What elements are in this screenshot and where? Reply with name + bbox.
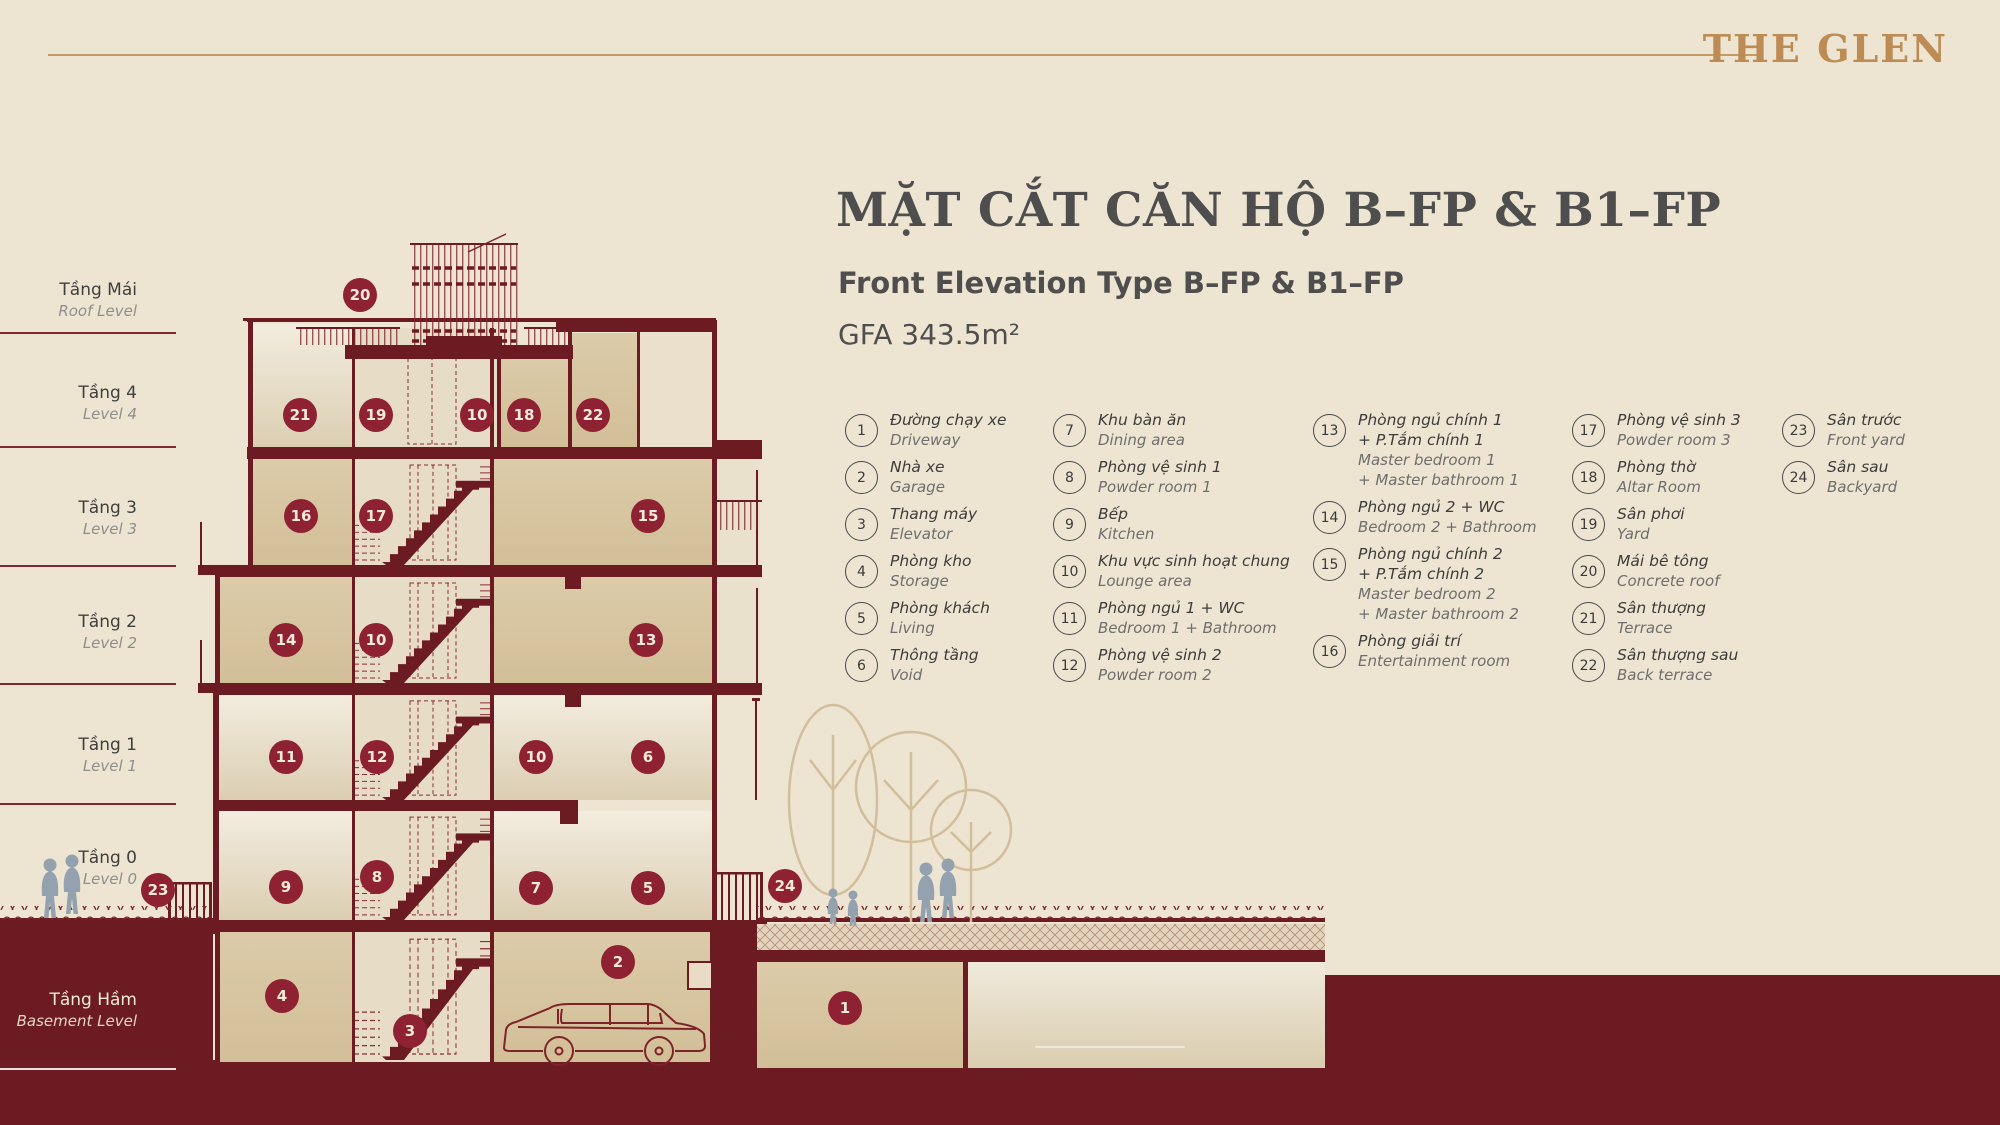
legend-number-circle: 11	[1053, 602, 1086, 635]
legend-text: Sân thượng sauBack terrace	[1617, 645, 1738, 685]
legend-label-vn: Đường chạy xe	[890, 410, 1007, 430]
room-number-badge: 7	[519, 871, 553, 905]
floor-label-en: Level 2	[0, 633, 137, 654]
room-number-badge: 14	[269, 623, 303, 657]
legend-number-circle: 21	[1572, 602, 1605, 635]
legend-number-circle: 1	[845, 414, 878, 447]
legend-item: 24Sân sauBackyard	[1782, 457, 1905, 497]
legend-text: Đường chạy xeDriveway	[890, 410, 1007, 450]
room-number-badge: 5	[631, 871, 665, 905]
legend-label-en: Elevator	[890, 524, 977, 544]
legend-number-circle: 22	[1572, 649, 1605, 682]
floor-label-en: Roof Level	[0, 301, 137, 322]
floor-level-line	[0, 683, 176, 685]
floor-label: Tầng 4Level 4	[0, 382, 137, 425]
legend-label-vn: Phòng vệ sinh 3	[1617, 410, 1741, 430]
legend-number-circle: 19	[1572, 508, 1605, 541]
trees	[789, 705, 1011, 922]
legend-text: Thang máyElevator	[890, 504, 977, 544]
legend-label-vn: Phòng vệ sinh 1	[1098, 457, 1222, 477]
legend-label-vn: Bếp	[1098, 504, 1154, 524]
legend-column: 23Sân trướcFront yard24Sân sauBackyard	[1782, 410, 1905, 504]
legend-label-en: Powder room 3	[1617, 430, 1741, 450]
legend-number-circle: 6	[845, 649, 878, 682]
legend-item: 20Mái bê tôngConcrete roof	[1572, 551, 1741, 591]
legend-item: 2Nhà xeGarage	[845, 457, 1007, 497]
legend-item: 23Sân trướcFront yard	[1782, 410, 1905, 450]
room-number-badge: 3	[393, 1014, 427, 1048]
floor-label-en: Level 3	[0, 519, 137, 540]
legend-number-circle: 4	[845, 555, 878, 588]
legend-number-circle: 8	[1053, 461, 1086, 494]
legend-number-circle: 17	[1572, 414, 1605, 447]
legend-text: Khu bàn ănDining area	[1098, 410, 1186, 450]
room-number-badge: 2	[601, 945, 635, 979]
room-number-badge: 19	[359, 398, 393, 432]
legend-label-en: Void	[890, 665, 979, 685]
floor-label-vn: Tầng 0	[0, 847, 137, 869]
legend-column: 17Phòng vệ sinh 3Powder room 318Phòng th…	[1572, 410, 1741, 692]
room-number-badge: 15	[631, 499, 665, 533]
legend-label-en: Master bedroom 2 + Master bathroom 2	[1358, 584, 1519, 624]
legend-column: 13Phòng ngủ chính 1 + P.Tắm chính 1Maste…	[1313, 410, 1537, 678]
floor-label-vn: Tầng Hầm	[0, 989, 137, 1011]
legend-label-en: Front yard	[1827, 430, 1905, 450]
floor-label: Tầng MáiRoof Level	[0, 279, 137, 322]
room-number-badge: 12	[360, 740, 394, 774]
legend-text: Phòng khoStorage	[890, 551, 972, 591]
legend-text: Mái bê tôngConcrete roof	[1617, 551, 1719, 591]
floor-label-en: Basement Level	[0, 1011, 137, 1032]
legend-label-vn: Phòng ngủ chính 2 + P.Tắm chính 2	[1358, 544, 1519, 584]
elevation-poster: THE GLEN MẶT CẮT CĂN HỘ B–FP & B1–FP Fro…	[0, 0, 2000, 1125]
legend-item: 19Sân phơiYard	[1572, 504, 1741, 544]
legend-number-circle: 18	[1572, 461, 1605, 494]
legend-text: Sân phơiYard	[1617, 504, 1685, 544]
legend-label-vn: Phòng giải trí	[1358, 631, 1510, 651]
legend-text: Phòng kháchLiving	[890, 598, 990, 638]
legend-number-circle: 13	[1313, 414, 1346, 447]
legend-label-en: Bedroom 2 + Bathroom	[1358, 517, 1537, 537]
legend-item: 7Khu bàn ănDining area	[1053, 410, 1290, 450]
legend-label-en: Yard	[1617, 524, 1685, 544]
legend-item: 22Sân thượng sauBack terrace	[1572, 645, 1741, 685]
legend-number-circle: 20	[1572, 555, 1605, 588]
legend-label-en: Driveway	[890, 430, 1007, 450]
floor-label-vn: Tầng 1	[0, 734, 137, 756]
floor-label-vn: Tầng 3	[0, 497, 137, 519]
legend-text: Phòng giải tríEntertainment room	[1358, 631, 1510, 671]
legend-label-en: Concrete roof	[1617, 571, 1719, 591]
legend-label-en: Back terrace	[1617, 665, 1738, 685]
legend-label-vn: Nhà xe	[890, 457, 945, 477]
legend-label-vn: Sân thượng	[1617, 598, 1706, 618]
legend-text: Khu vực sinh hoạt chungLounge area	[1098, 551, 1290, 591]
legend-item: 18Phòng thờAltar Room	[1572, 457, 1741, 497]
roof-pergola	[410, 234, 518, 345]
legend-item: 10Khu vực sinh hoạt chungLounge area	[1053, 551, 1290, 591]
legend-item: 13Phòng ngủ chính 1 + P.Tắm chính 1Maste…	[1313, 410, 1537, 490]
legend-item: 4Phòng khoStorage	[845, 551, 1007, 591]
legend-number-circle: 23	[1782, 414, 1815, 447]
legend-label-vn: Mái bê tông	[1617, 551, 1719, 571]
legend-text: Phòng vệ sinh 1Powder room 1	[1098, 457, 1222, 497]
legend-item: 16Phòng giải tríEntertainment room	[1313, 631, 1537, 671]
legend-text: Phòng vệ sinh 3Powder room 3	[1617, 410, 1741, 450]
room-number-badge: 20	[343, 278, 377, 312]
legend-label-en: Living	[890, 618, 990, 638]
floor-level-line	[0, 332, 176, 334]
legend-label-vn: Sân trước	[1827, 410, 1905, 430]
room-number-badge: 16	[284, 499, 318, 533]
room-number-badge: 11	[269, 740, 303, 774]
legend-text: Phòng ngủ 2 + WCBedroom 2 + Bathroom	[1358, 497, 1537, 537]
floor-label: Tầng 0Level 0	[0, 847, 137, 890]
legend-label-vn: Phòng ngủ 1 + WC	[1098, 598, 1277, 618]
floor-label: Tầng 2Level 2	[0, 611, 137, 654]
legend-text: Phòng ngủ chính 1 + P.Tắm chính 1Master …	[1358, 410, 1519, 490]
legend-text: Sân trướcFront yard	[1827, 410, 1905, 450]
legend-number-circle: 14	[1313, 501, 1346, 534]
legend-item: 12Phòng vệ sinh 2Powder room 2	[1053, 645, 1290, 685]
legend-label-en: Powder room 2	[1098, 665, 1222, 685]
legend-text: Phòng vệ sinh 2Powder room 2	[1098, 645, 1222, 685]
legend-number-circle: 12	[1053, 649, 1086, 682]
legend-label-vn: Phòng kho	[890, 551, 972, 571]
legend-label-vn: Phòng thờ	[1617, 457, 1701, 477]
legend-item: 6Thông tầngVoid	[845, 645, 1007, 685]
legend-item: 8Phòng vệ sinh 1Powder room 1	[1053, 457, 1290, 497]
floor-label-en: Level 4	[0, 404, 137, 425]
room-number-badge: 21	[283, 398, 317, 432]
legend-label-vn: Thông tầng	[890, 645, 979, 665]
legend-label-en: Dining area	[1098, 430, 1186, 450]
legend-number-circle: 3	[845, 508, 878, 541]
floor-label-en: Level 0	[0, 869, 137, 890]
legend-label-vn: Sân phơi	[1617, 504, 1685, 524]
floor-level-line	[0, 803, 176, 805]
legend-label-vn: Phòng vệ sinh 2	[1098, 645, 1222, 665]
legend-item: 3Thang máyElevator	[845, 504, 1007, 544]
legend-text: Sân thượngTerrace	[1617, 598, 1706, 638]
legend-label-en: Lounge area	[1098, 571, 1290, 591]
legend-label-vn: Phòng khách	[890, 598, 990, 618]
legend-label-en: Entertainment room	[1358, 651, 1510, 671]
legend-text: Phòng thờAltar Room	[1617, 457, 1701, 497]
legend-text: Phòng ngủ chính 2 + P.Tắm chính 2Master …	[1358, 544, 1519, 624]
room-number-badge: 4	[265, 979, 299, 1013]
legend-number-circle: 5	[845, 602, 878, 635]
room-number-badge: 24	[768, 869, 802, 903]
legend-label-en: Terrace	[1617, 618, 1706, 638]
legend-item: 14Phòng ngủ 2 + WCBedroom 2 + Bathroom	[1313, 497, 1537, 537]
legend-label-en: Bedroom 1 + Bathroom	[1098, 618, 1277, 638]
room-number-badge: 18	[507, 398, 541, 432]
room-number-badge: 23	[141, 873, 175, 907]
room-number-badge: 8	[360, 860, 394, 894]
room-number-badge: 9	[269, 870, 303, 904]
floor-label-vn: Tầng Mái	[0, 279, 137, 301]
floor-level-line	[0, 565, 176, 567]
legend-number-circle: 10	[1053, 555, 1086, 588]
room-number-badge: 22	[576, 398, 610, 432]
legend-item: 15Phòng ngủ chính 2 + P.Tắm chính 2Maste…	[1313, 544, 1537, 624]
legend-item: 11Phòng ngủ 1 + WCBedroom 1 + Bathroom	[1053, 598, 1290, 638]
floor-label: Tầng HầmBasement Level	[0, 989, 137, 1032]
legend-item: 17Phòng vệ sinh 3Powder room 3	[1572, 410, 1741, 450]
floor-label-en: Level 1	[0, 756, 137, 777]
room-number-badge: 10	[519, 740, 553, 774]
legend-label-vn: Thang máy	[890, 504, 977, 524]
legend-label-en: Powder room 1	[1098, 477, 1222, 497]
floor-level-line	[0, 446, 176, 448]
legend-number-circle: 24	[1782, 461, 1815, 494]
legend-label-vn: Sân thượng sau	[1617, 645, 1738, 665]
legend-number-circle: 15	[1313, 548, 1346, 581]
legend-label-en: Backyard	[1827, 477, 1897, 497]
legend-item: 9BếpKitchen	[1053, 504, 1290, 544]
legend-item: 5Phòng kháchLiving	[845, 598, 1007, 638]
legend-column: 7Khu bàn ănDining area8Phòng vệ sinh 1Po…	[1053, 410, 1290, 692]
legend-number-circle: 16	[1313, 635, 1346, 668]
legend-number-circle: 2	[845, 461, 878, 494]
legend-item: 21Sân thượngTerrace	[1572, 598, 1741, 638]
legend-label-en: Storage	[890, 571, 972, 591]
room-number-badge: 6	[631, 740, 665, 774]
floor-label: Tầng 3Level 3	[0, 497, 137, 540]
legend-label-vn: Phòng ngủ chính 1 + P.Tắm chính 1	[1358, 410, 1519, 450]
room-number-badge: 17	[359, 499, 393, 533]
legend-text: BếpKitchen	[1098, 504, 1154, 544]
legend-text: Nhà xeGarage	[890, 457, 945, 497]
legend-label-vn: Khu vực sinh hoạt chung	[1098, 551, 1290, 571]
legend-column: 1Đường chạy xeDriveway2Nhà xeGarage3Than…	[845, 410, 1007, 692]
legend-text: Phòng ngủ 1 + WCBedroom 1 + Bathroom	[1098, 598, 1277, 638]
legend-text: Sân sauBackyard	[1827, 457, 1897, 497]
legend-label-en: Garage	[890, 477, 945, 497]
floor-label-vn: Tầng 2	[0, 611, 137, 633]
legend-text: Thông tầngVoid	[890, 645, 979, 685]
legend-label-vn: Phòng ngủ 2 + WC	[1358, 497, 1537, 517]
legend-label-vn: Sân sau	[1827, 457, 1897, 477]
legend-number-circle: 7	[1053, 414, 1086, 447]
legend-label-en: Altar Room	[1617, 477, 1701, 497]
legend-label-vn: Khu bàn ăn	[1098, 410, 1186, 430]
legend-item: 1Đường chạy xeDriveway	[845, 410, 1007, 450]
room-number-badge: 1	[828, 991, 862, 1025]
legend-label-en: Master bedroom 1 + Master bathroom 1	[1358, 450, 1519, 490]
room-number-badge: 10	[460, 398, 494, 432]
floor-level-line	[0, 1068, 176, 1070]
room-number-badge: 10	[359, 623, 393, 657]
legend-label-en: Kitchen	[1098, 524, 1154, 544]
room-number-badge: 13	[629, 623, 663, 657]
floor-label-vn: Tầng 4	[0, 382, 137, 404]
legend-number-circle: 9	[1053, 508, 1086, 541]
floor-label: Tầng 1Level 1	[0, 734, 137, 777]
